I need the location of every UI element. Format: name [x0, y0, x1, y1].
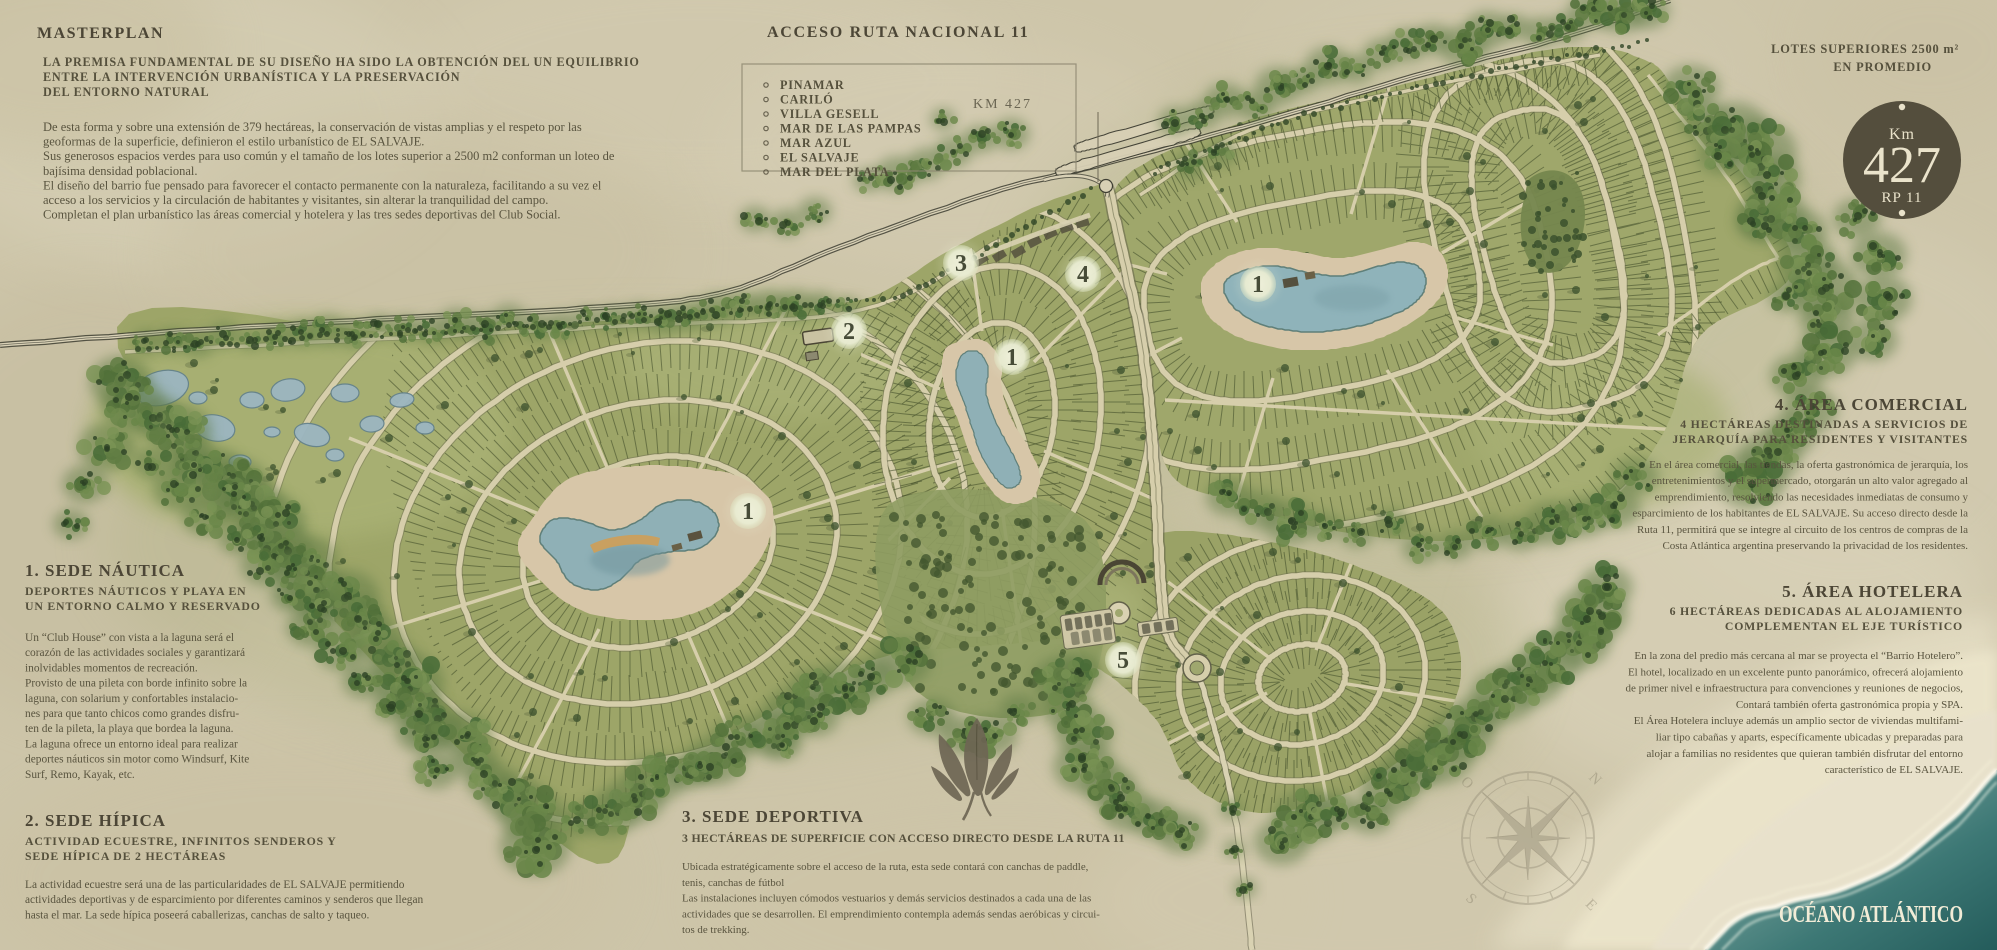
svg-text:PINAMAR: PINAMAR [780, 78, 845, 92]
svg-text:RP 11: RP 11 [1882, 190, 1923, 206]
svg-text:inolvidables momentos de recre: inolvidables momentos de recreación. [25, 662, 198, 674]
svg-text:4. ÁREA COMERCIAL: 4. ÁREA COMERCIAL [1775, 395, 1968, 414]
svg-text:actividades deportivas y de es: actividades deportivas y de esparcimient… [25, 894, 424, 906]
svg-text:DEL ENTORNO NATURAL: DEL ENTORNO NATURAL [43, 85, 209, 99]
svg-text:LOTES SUPERIORES 2500 m²: LOTES SUPERIORES 2500 m² [1771, 42, 1959, 56]
svg-text:deportes náuticos sin motor co: deportes náuticos sin motor como Windsur… [25, 754, 249, 766]
svg-text:La laguna ofrece un entorno id: La laguna ofrece un entorno ideal para r… [25, 738, 238, 750]
svg-text:Surf, Remo, Kayak, etc.: Surf, Remo, Kayak, etc. [25, 769, 135, 781]
svg-text:4 HECTÁREAS DESTINADAS A SERVI: 4 HECTÁREAS DESTINADAS A SERVICIOS DE [1680, 417, 1968, 431]
svg-text:ACCESO RUTA NACIONAL 11: ACCESO RUTA NACIONAL 11 [767, 24, 1029, 41]
svg-text:MAR DE LAS PAMPAS: MAR DE LAS PAMPAS [780, 122, 921, 136]
svg-text:Provisto de una pileta con bor: Provisto de una pileta con borde infinit… [25, 678, 247, 690]
svg-text:Contará también oferta gastron: Contará también oferta gastronómica prop… [1736, 699, 1963, 711]
svg-text:MAR AZUL: MAR AZUL [780, 136, 852, 150]
svg-text:MASTERPLAN: MASTERPLAN [37, 25, 164, 42]
svg-text:acceso a los servicios y la ci: acceso a los servicios y la circulación … [43, 193, 548, 207]
svg-text:característico de EL SALVAJE.: característico de EL SALVAJE. [1825, 764, 1964, 776]
svg-text:4: 4 [1077, 262, 1089, 288]
svg-text:1: 1 [1006, 345, 1018, 371]
svg-text:EN PROMEDIO: EN PROMEDIO [1833, 60, 1932, 74]
svg-text:Un “Club House” con vista a la: Un “Club House” con vista a la laguna se… [25, 632, 234, 644]
svg-text:COMPLEMENTAN EL EJE TURÍSTICO: COMPLEMENTAN EL EJE TURÍSTICO [1725, 619, 1963, 633]
svg-text:1: 1 [742, 499, 754, 525]
svg-text:corazón de las actividades soc: corazón de las actividades sociales y ga… [25, 647, 245, 659]
svg-text:nes para que tanto chicos como: nes para que tanto chicos como grandes d… [25, 708, 239, 720]
svg-text:EL SALVAJE: EL SALVAJE [780, 151, 859, 165]
svg-text:2. SEDE HÍPICA: 2. SEDE HÍPICA [25, 811, 166, 830]
svg-text:El Área Hotelera incluye ademá: El Área Hotelera incluye además un ampli… [1634, 715, 1964, 727]
svg-text:La actividad ecuestre será una: La actividad ecuestre será una de las pa… [25, 879, 405, 891]
svg-text:KM 427: KM 427 [973, 97, 1032, 112]
svg-text:ten de la pileta, la playa que: ten de la pileta, la playa que bordea la… [25, 723, 234, 735]
svg-text:liar tipo cabañas y aparts, es: liar tipo cabañas y aparts, específicame… [1656, 732, 1963, 744]
svg-text:3: 3 [955, 251, 967, 277]
svg-text:OCÉANO ATLÁNTICO: OCÉANO ATLÁNTICO [1779, 902, 1963, 928]
svg-text:MAR DEL PLATA: MAR DEL PLATA [780, 165, 889, 179]
svg-text:1: 1 [1252, 272, 1264, 298]
svg-text:VILLA GESELL: VILLA GESELL [780, 107, 879, 121]
svg-text:tenis, canchas de fútbol: tenis, canchas de fútbol [682, 877, 784, 889]
svg-text:En el área comercial, las tien: En el área comercial, las tiendas, la of… [1649, 459, 1968, 471]
svg-text:ENTRE LA INTERVENCIÓN URBANÍST: ENTRE LA INTERVENCIÓN URBANÍSTICA Y LA P… [43, 70, 460, 84]
svg-text:Ubicada estratégicamente sobre: Ubicada estratégicamente sobre el acceso… [682, 861, 1089, 873]
svg-text:LA PREMISA FUNDAMENTAL DE SU D: LA PREMISA FUNDAMENTAL DE SU DISEÑO HA S… [43, 55, 640, 69]
svg-text:El hotel, localizado en un exc: El hotel, localizado en un excelente pun… [1628, 666, 1964, 678]
svg-text:esparcimiento de los habitante: esparcimiento de los habitantes de EL SA… [1632, 508, 1968, 520]
svg-text:ACTIVIDAD ECUESTRE, INFINITOS: ACTIVIDAD ECUESTRE, INFINITOS SENDEROS Y [25, 834, 337, 848]
svg-text:6 HECTÁREAS DEDICADAS AL ALOJA: 6 HECTÁREAS DEDICADAS AL ALOJAMIENTO [1670, 604, 1963, 618]
svg-text:tos de trekking.: tos de trekking. [682, 924, 749, 936]
svg-text:entretenimientos y el supermer: entretenimientos y el supermercado, otor… [1652, 475, 1968, 487]
svg-text:El diseño del barrio fue pensa: El diseño del barrio fue pensado para fa… [43, 178, 602, 192]
svg-text:Completan el plan urbanístico: Completan el plan urbanístico las áreas … [43, 208, 561, 222]
svg-text:5. ÁREA HOTELERA: 5. ÁREA HOTELERA [1782, 582, 1963, 601]
svg-text:JERARQUÍA PARA RESIDENTES Y VI: JERARQUÍA PARA RESIDENTES Y VISITANTES [1672, 432, 1968, 446]
svg-text:Sus generosos espacios verdes: Sus generosos espacios verdes para uso c… [43, 149, 615, 163]
svg-text:UN ENTORNO CALMO Y RESERVADO: UN ENTORNO CALMO Y RESERVADO [25, 599, 261, 613]
svg-text:Ruta 11, permitirá que se inte: Ruta 11, permitirá que se integre al cir… [1637, 524, 1968, 536]
svg-text:emprendimiento, resolviendo la: emprendimiento, resolviendo las necesida… [1655, 491, 1969, 503]
svg-text:SEDE HÍPICA DE 2 HECTÁREAS: SEDE HÍPICA DE 2 HECTÁREAS [25, 849, 226, 863]
svg-text:427: 427 [1863, 137, 1941, 194]
svg-text:5: 5 [1117, 648, 1129, 674]
svg-text:de primer nivel e infraestruct: de primer nivel e infraestructura para c… [1625, 683, 1963, 695]
svg-text:3 HECTÁREAS DE SUPERFICIE CON: 3 HECTÁREAS DE SUPERFICIE CON ACCESO DIR… [682, 831, 1125, 845]
svg-text:actividades que se desarrollen: actividades que se desarrollen. El empre… [682, 908, 1100, 920]
svg-text:hasta el mar. La sede hípica p: hasta el mar. La sede hípica poseerá cab… [25, 909, 370, 921]
svg-text:En la zona del predio más cerc: En la zona del predio más cercana al mar… [1634, 650, 1963, 662]
svg-text:Las instalaciones incluyen cóm: Las instalaciones incluyen cómodos vestu… [682, 893, 1091, 905]
svg-text:3. SEDE DEPORTIVA: 3. SEDE DEPORTIVA [682, 807, 864, 826]
svg-text:geoformas de la superficie, de: geoformas de la superficie, definieron e… [43, 135, 424, 149]
svg-text:1. SEDE NÁUTICA: 1. SEDE NÁUTICA [25, 561, 185, 580]
svg-text:De esta forma y sobre una exte: De esta forma y sobre una extensión de 3… [43, 120, 582, 134]
svg-text:alojar a familias no residente: alojar a familias no residentes que quie… [1647, 748, 1964, 760]
svg-text:Costa Atlántica argentina pres: Costa Atlántica argentina preservando la… [1662, 540, 1968, 552]
svg-text:CARILÓ: CARILÓ [780, 93, 834, 107]
svg-text:bajísima densidad poblacional.: bajísima densidad poblacional. [43, 164, 197, 178]
svg-text:2: 2 [843, 319, 855, 345]
svg-text:laguna, con solarium y confor: laguna, con solarium y confortables inst… [25, 693, 238, 705]
svg-text:DEPORTES NÁUTICOS Y PLAYA EN: DEPORTES NÁUTICOS Y PLAYA EN [25, 584, 247, 598]
